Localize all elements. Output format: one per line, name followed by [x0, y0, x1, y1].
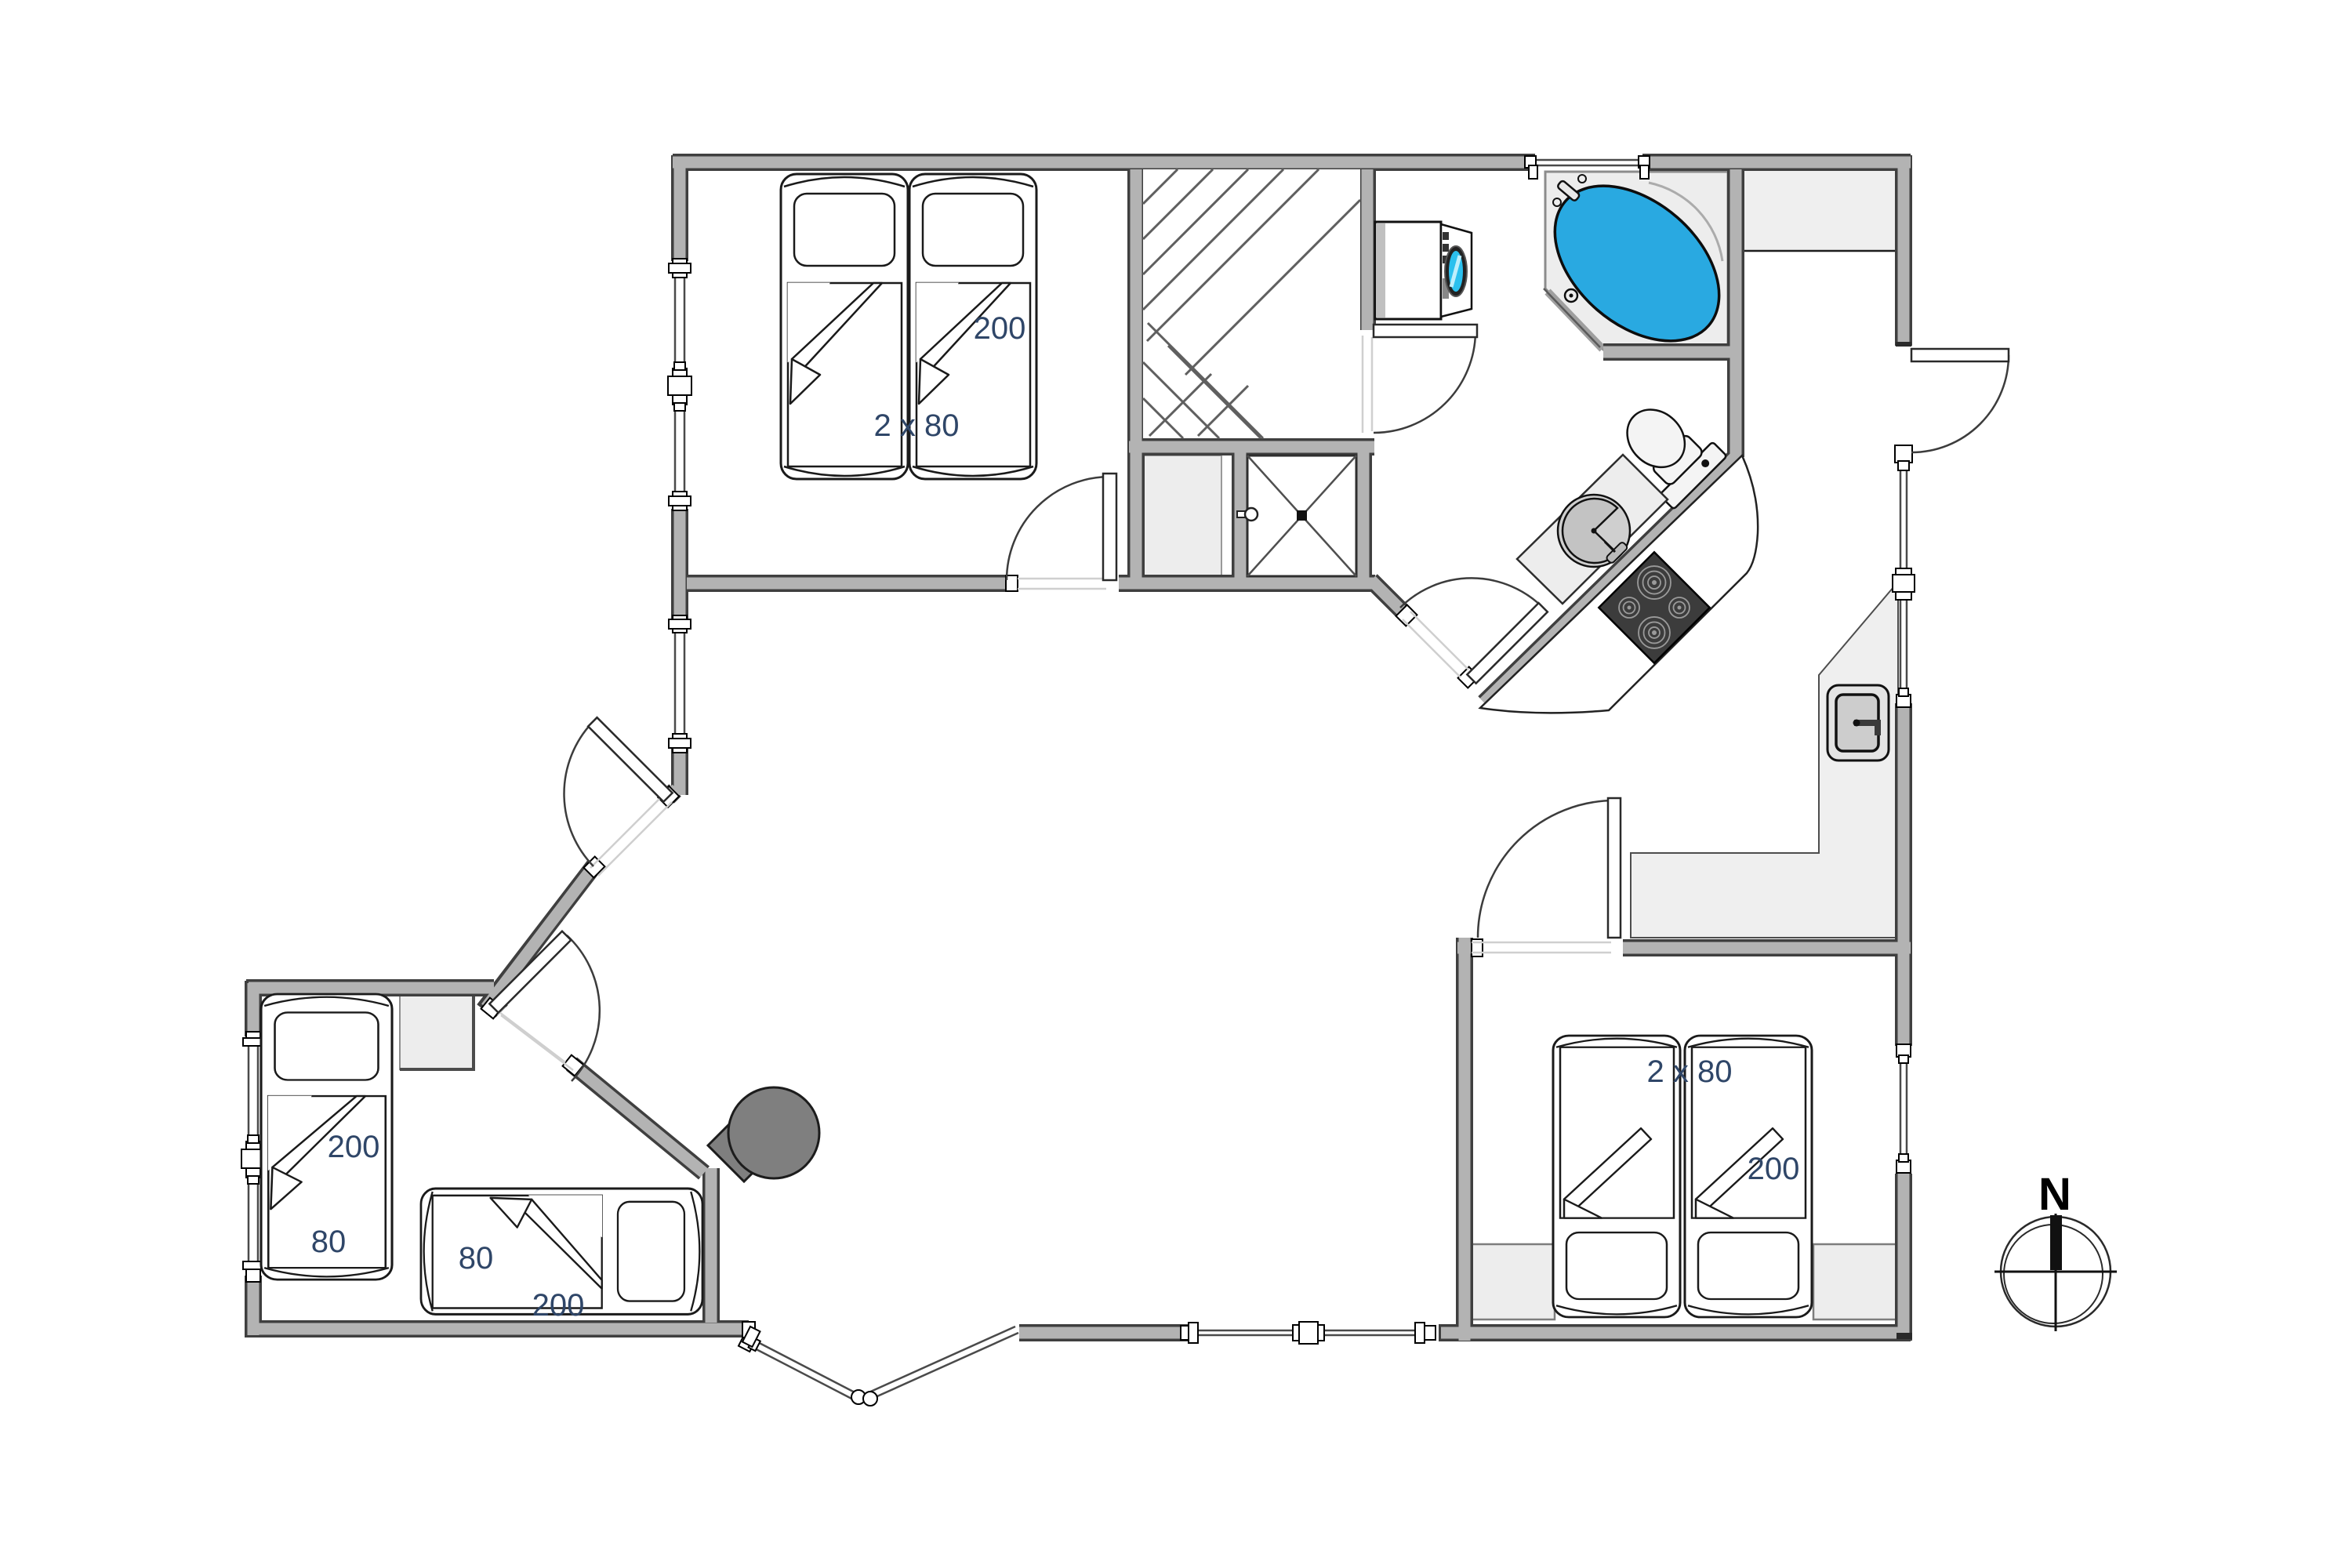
svg-text:200: 200	[1748, 1152, 1800, 1186]
svg-text:200: 200	[974, 311, 1026, 346]
svg-text:80: 80	[311, 1225, 347, 1259]
svg-text:200: 200	[328, 1130, 380, 1164]
svg-text:2 x 80: 2 x 80	[1647, 1054, 1733, 1089]
svg-text:200: 200	[532, 1288, 585, 1323]
svg-text:80: 80	[459, 1241, 494, 1276]
svg-text:2 x 80: 2 x 80	[874, 408, 960, 443]
svg-text:N: N	[2038, 1169, 2071, 1220]
